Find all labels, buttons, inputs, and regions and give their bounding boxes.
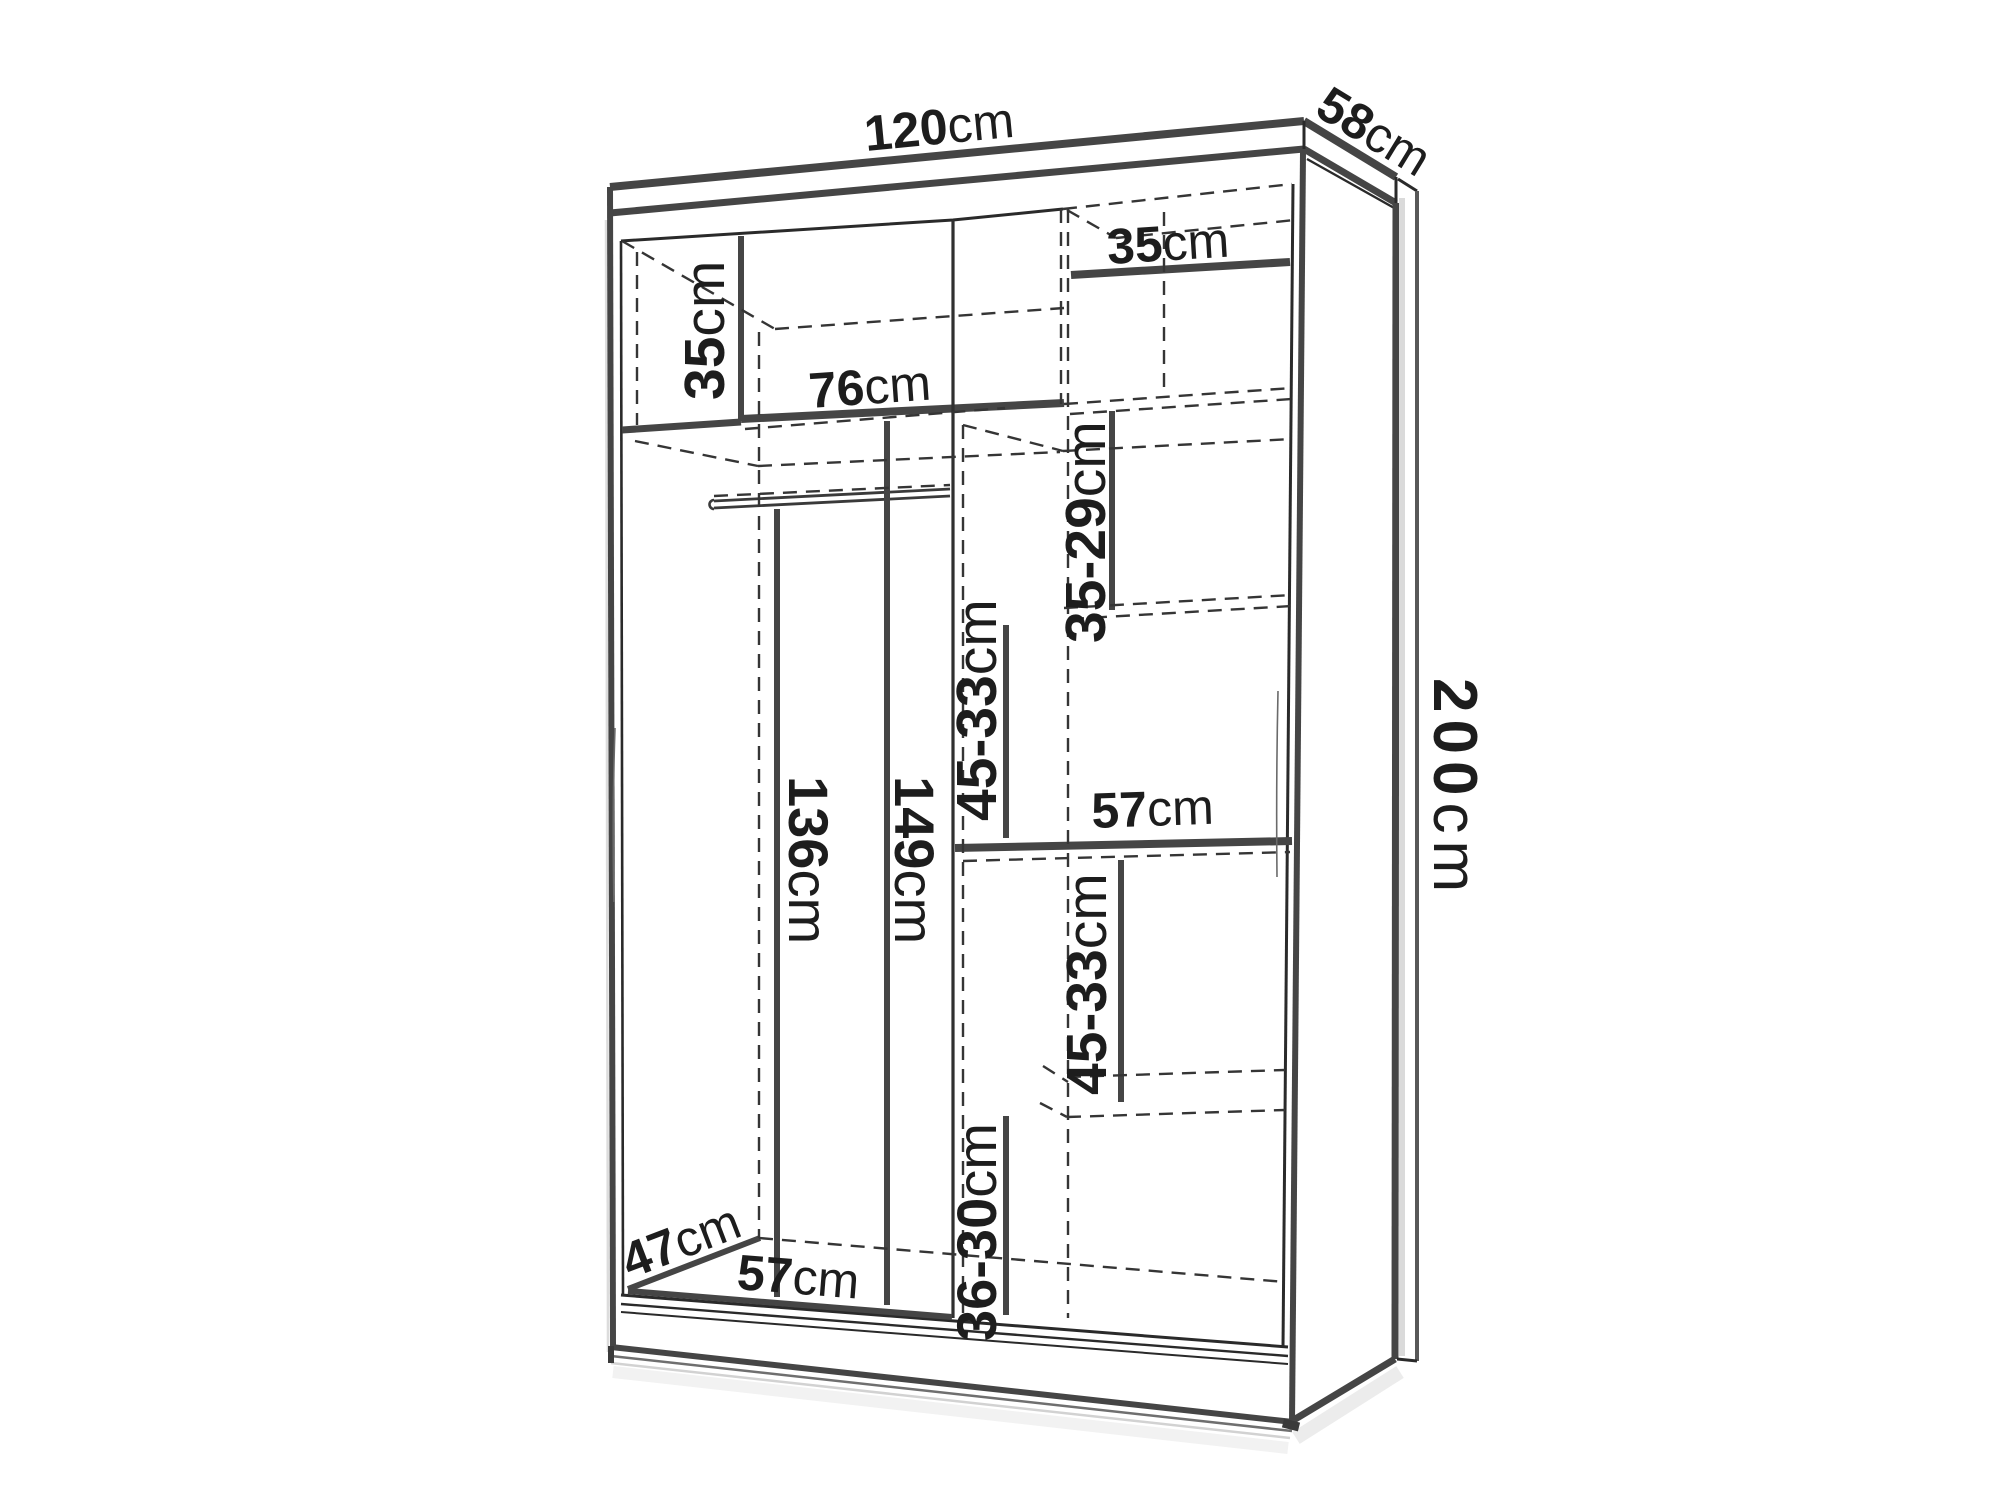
svg-text:35cm: 35cm [673, 261, 737, 400]
svg-text:57cm: 57cm [735, 1244, 861, 1309]
svg-text:149cm: 149cm [883, 776, 946, 944]
svg-text:136cm: 136cm [777, 776, 840, 944]
svg-text:57cm: 57cm [1090, 779, 1214, 839]
svg-text:36-30cm: 36-30cm [945, 1123, 1008, 1341]
svg-text:35-29cm: 35-29cm [1054, 421, 1118, 643]
svg-text:200cm: 200cm [1420, 678, 1489, 899]
svg-text:76cm: 76cm [807, 355, 933, 419]
svg-text:45-33cm: 45-33cm [1055, 873, 1119, 1095]
svg-text:45-33cm: 45-33cm [945, 599, 1009, 821]
svg-text:35cm: 35cm [1105, 212, 1230, 275]
